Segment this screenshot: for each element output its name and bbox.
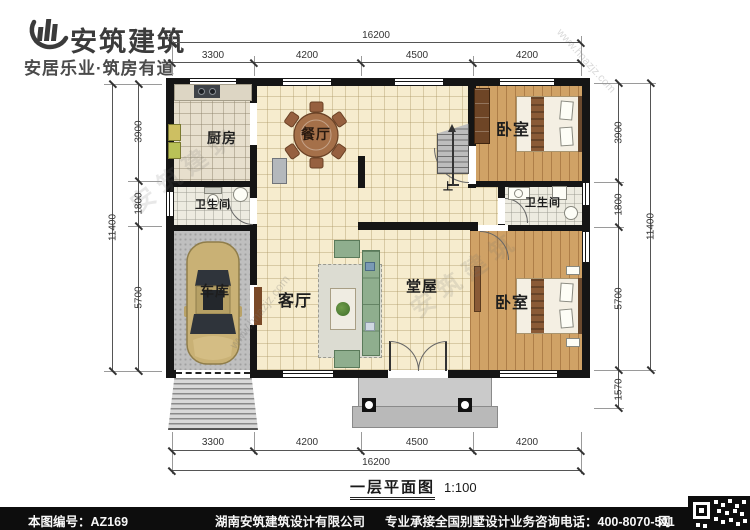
- footer-service: 专业承接全国别墅设计业务: [385, 511, 535, 530]
- window-bath-right: [582, 183, 590, 205]
- sink-right-basin: [514, 189, 523, 198]
- room-label-living: 客厅: [278, 287, 312, 311]
- room-label-garage: 车库: [200, 281, 230, 301]
- toilet-right-icon: [564, 206, 578, 220]
- plant-icon: [336, 302, 350, 316]
- bed-bottom-pillow-1: [559, 283, 573, 303]
- dim-top-seg-3: 4500: [385, 50, 449, 61]
- bed-top-pillow-2: [559, 127, 573, 147]
- room-label-bedroom-bottom: 卧室: [495, 289, 529, 313]
- floor-plan-page: 安筑建筑 安居乐业·筑房有道: [0, 0, 750, 530]
- porch-column-left-cap: [365, 401, 373, 409]
- ext-line: [594, 370, 656, 371]
- brand-slogan: 安居乐业·筑房有道: [24, 54, 175, 79]
- bed-bottom-headboard: [578, 278, 582, 334]
- car-icon: [183, 240, 243, 366]
- ext-line: [594, 83, 656, 84]
- footer-company: 湖南安筑建筑设计有限公司: [215, 511, 365, 530]
- kitchen-door-opening: [250, 103, 257, 145]
- tv-stand-icon: [474, 266, 481, 312]
- front-door-opening: [388, 370, 448, 378]
- dim-line-top-seg: [172, 62, 581, 63]
- ext-line: [128, 226, 162, 227]
- nightstand-1: [566, 266, 580, 275]
- toilet-left-icon: [204, 187, 222, 194]
- dim-top-overall: 16200: [344, 30, 408, 41]
- stairs-arrow-head: [448, 124, 456, 132]
- dim-line-bottom-seg: [172, 450, 581, 451]
- sink-left-icon: [233, 187, 248, 202]
- window-bedroom-top: [500, 78, 554, 86]
- driveway-ramp: [168, 378, 258, 430]
- bedroom-bottom-door-opening: [478, 225, 508, 231]
- bed-top-runner: [531, 97, 544, 151]
- dim-right-seg-2: 1800: [614, 183, 625, 227]
- dim-bottom-seg-1: 3300: [181, 437, 245, 448]
- bedroom-top-door-opening: [468, 146, 476, 184]
- wall-bath-garage: [168, 225, 256, 231]
- window-dining-top-left: [283, 78, 331, 86]
- dim-right-seg-4: 1570: [614, 368, 625, 412]
- dim-bottom-seg-4: 4200: [495, 437, 559, 448]
- bed-top-pillow-1: [559, 100, 574, 120]
- sofa-pillow-1: [365, 262, 375, 271]
- plan-title: 一层平面图1:100: [350, 476, 477, 497]
- plan-scale: 1:100: [444, 480, 477, 495]
- dim-right-overall: 11400: [646, 205, 657, 249]
- window-living-bottom: [283, 370, 333, 378]
- stove-burner-1: [198, 88, 205, 95]
- footer-drawing-code: 本图编号：AZ169: [28, 511, 128, 530]
- nightstand-2: [566, 338, 580, 347]
- bed-bottom-runner: [531, 279, 544, 333]
- dim-bottom-overall: 16200: [344, 457, 408, 468]
- garage-door-dashed: [176, 372, 250, 374]
- stairs-arrow-line: [452, 130, 454, 184]
- room-label-bedroom-top: 卧室: [496, 116, 530, 140]
- bed-bottom-pillow-2: [559, 308, 574, 328]
- room-label-bath-left: 卫生间: [195, 196, 231, 212]
- ext-line: [473, 56, 474, 76]
- dim-right-seg-3: 5700: [614, 277, 625, 321]
- garage-living-door-leaf: [254, 287, 262, 325]
- dim-line-top-overall: [172, 42, 581, 43]
- footer-web-label: 网: [658, 511, 671, 530]
- window-dining-top-right: [395, 78, 443, 86]
- wall-dining-living-stub: [358, 156, 365, 188]
- dim-bottom-seg-3: 4500: [385, 437, 449, 448]
- dim-left-seg-3: 5700: [134, 276, 145, 320]
- wall-dining-hall: [358, 222, 478, 230]
- sofa-armchair-bottom-icon: [334, 350, 360, 368]
- bed-top-headboard: [578, 96, 582, 152]
- dim-left-overall: 11400: [108, 206, 119, 250]
- porch-column-right-cap: [461, 401, 469, 409]
- dim-left-seg-1: 3900: [134, 110, 145, 154]
- bath-right-door-opening: [498, 198, 505, 224]
- footer-phone: 咨询电话：400-8070-511: [535, 511, 675, 530]
- window-bedroom-bottom-right: [582, 232, 590, 262]
- dim-top-seg-4: 4200: [495, 50, 559, 61]
- plan-title-text: 一层平面图: [350, 479, 435, 500]
- window-bedroom-bottom: [500, 370, 557, 378]
- dim-line-bottom-overall: [172, 470, 581, 471]
- stove-burner-2: [209, 88, 216, 95]
- room-label-dining: 餐厅: [301, 124, 331, 144]
- kitchen-sink-icon: [168, 124, 181, 141]
- sofa-armchair-top-icon: [334, 240, 360, 258]
- dim-bottom-seg-2: 4200: [275, 437, 339, 448]
- footer-bar: 本图编号：AZ169 湖南安筑建筑设计有限公司 专业承接全国别墅设计业务 咨询电…: [0, 507, 750, 530]
- window-bath-left: [166, 192, 174, 216]
- wardrobe-top-icon: [474, 88, 490, 144]
- stairs-up-label: 上: [443, 178, 453, 193]
- ext-line: [254, 56, 255, 76]
- brand-logo-icon: [22, 12, 72, 56]
- room-label-bath-right: 卫生间: [525, 194, 561, 210]
- kitchen-prep-icon: [168, 142, 181, 159]
- ext-line: [361, 56, 362, 76]
- dim-top-seg-1: 3300: [181, 50, 245, 61]
- qr-code: [688, 496, 750, 530]
- sofa-pillow-2: [365, 322, 375, 331]
- room-label-kitchen: 厨房: [207, 128, 237, 148]
- dim-top-seg-2: 4200: [275, 50, 339, 61]
- dim-left-seg-2: 1800: [134, 182, 145, 226]
- dim-right-seg-1: 3900: [614, 111, 625, 155]
- room-label-hall: 堂屋: [406, 276, 438, 297]
